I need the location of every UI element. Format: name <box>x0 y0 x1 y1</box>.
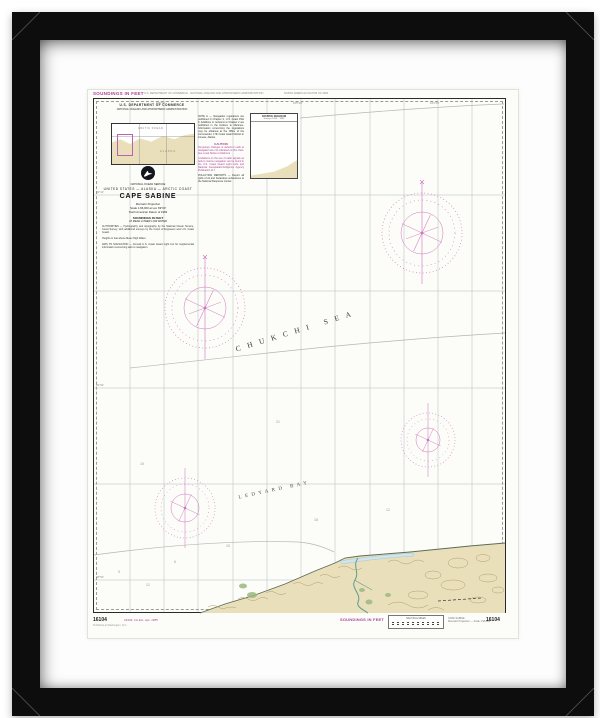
title-block: NATIONAL OCEAN SERVICE UNITED STATES — A… <box>102 183 194 249</box>
inset-land-label: ALASKA <box>160 150 176 153</box>
bottom-left-note: Published at Washington, D.C. <box>93 624 127 627</box>
frame-miter-top-right <box>566 12 594 40</box>
chart-title: CAPE SABINE <box>102 193 194 200</box>
sounding: 18 <box>314 518 318 522</box>
latitude-label: 69°00' <box>96 383 104 387</box>
inset-gridline <box>139 124 140 164</box>
bar-scale-box: NAUTICAL MILES <box>388 615 444 629</box>
source-diagram-land <box>251 114 297 178</box>
latitude-label: 68°50' <box>96 575 104 579</box>
note-a: NOTE A — Navigation regulations are publ… <box>198 115 244 139</box>
bar-scale <box>392 624 440 625</box>
pollution-note: POLLUTION REPORTS — Report all spills of… <box>198 174 244 183</box>
authorities-para: AUTHORITIES — Hydrography and topography… <box>102 225 194 234</box>
dept-line: U.S. DEPARTMENT OF COMMERCE <box>106 103 198 107</box>
bottom-right-scale: Mercator Projection — Scale 1:96,000 <box>448 620 490 623</box>
edition-note: 16104, 1st Ed., Apr. 1985 <box>124 618 158 622</box>
compass-rose-2 <box>382 180 462 284</box>
source-diagram-subtitle: Surveys 1950 – 1984 <box>251 118 297 122</box>
sounding: 15 <box>140 462 144 466</box>
chart-paper: SOUNDINGS IN FEET U.S. DEPARTMENT OF COM… <box>88 90 518 638</box>
datum-line: North American Datum of 1983 <box>102 210 194 214</box>
land-area <box>200 543 505 613</box>
source-diagram-box: SOURCE DIAGRAM Surveys 1950 – 1984 <box>250 113 298 179</box>
chart-number-bottom-left: 16104 <box>93 617 107 623</box>
sounding: 6 <box>174 560 176 564</box>
sounding: 9 <box>118 570 120 574</box>
bar-scale <box>392 622 440 623</box>
region-line: UNITED STATES — ALASKA — ARCTIC COAST <box>102 187 194 191</box>
picture-frame: SOUNDINGS IN FEET U.S. DEPARTMENT OF COM… <box>12 12 594 716</box>
frame-miter-top-left <box>12 12 40 40</box>
chart-header: U.S. DEPARTMENT OF COMMERCE NATIONAL OCE… <box>106 103 198 111</box>
longitude-label: 165°00' <box>293 101 302 105</box>
tide-line: AT MEAN LOWER LOW WATER <box>102 220 194 223</box>
notes-column: NOTE A — Navigation regulations are publ… <box>198 115 244 183</box>
framed-chart-photo: SOUNDINGS IN FEET U.S. DEPARTMENT OF COM… <box>0 0 600 718</box>
inset-coverage-box <box>117 134 133 156</box>
heights-para: Heights in feet above Mean High Water. <box>102 237 194 240</box>
frame-miter-bottom-left <box>12 688 40 716</box>
inset-gridline <box>166 124 167 164</box>
noaa-logo-icon <box>141 166 155 180</box>
sounding: 21 <box>276 420 280 424</box>
bottom-soundings-note: SOUNDINGS IN FEET <box>340 617 384 622</box>
chart-number-bottom-right: 16104 <box>486 617 500 623</box>
bottom-right-notes: CAPE SABINE Mercator Projection — Scale … <box>448 617 490 624</box>
compass-rose-3 <box>401 403 455 477</box>
sounding: 12 <box>386 508 390 512</box>
sounding: 12 <box>146 583 150 587</box>
aids-para: AIDS TO NAVIGATION — Consult U.S. Coast … <box>102 243 194 249</box>
service-line: NATIONAL OCEAN SERVICE <box>102 183 194 186</box>
inset-water-label: ARCTIC OCEAN <box>138 127 163 130</box>
graticule-grid <box>94 99 505 612</box>
longitude-label: 164°30' <box>430 101 439 105</box>
bar-scale-title: NAUTICAL MILES <box>389 617 443 620</box>
inset-locator-map: ARCTIC OCEAN ALASKA <box>111 123 195 165</box>
caution2-text: Limitations on the use of radio signals … <box>198 157 244 172</box>
agency-line: NATIONAL OCEANIC AND ATMOSPHERIC ADMINIS… <box>106 108 198 111</box>
frame-miter-bottom-right <box>566 688 594 716</box>
sounding: 15 <box>226 544 230 548</box>
caution-text: Temporary changes or defects in aids to … <box>198 146 244 155</box>
white-mat: SOUNDINGS IN FEET U.S. DEPARTMENT OF COM… <box>40 40 566 688</box>
